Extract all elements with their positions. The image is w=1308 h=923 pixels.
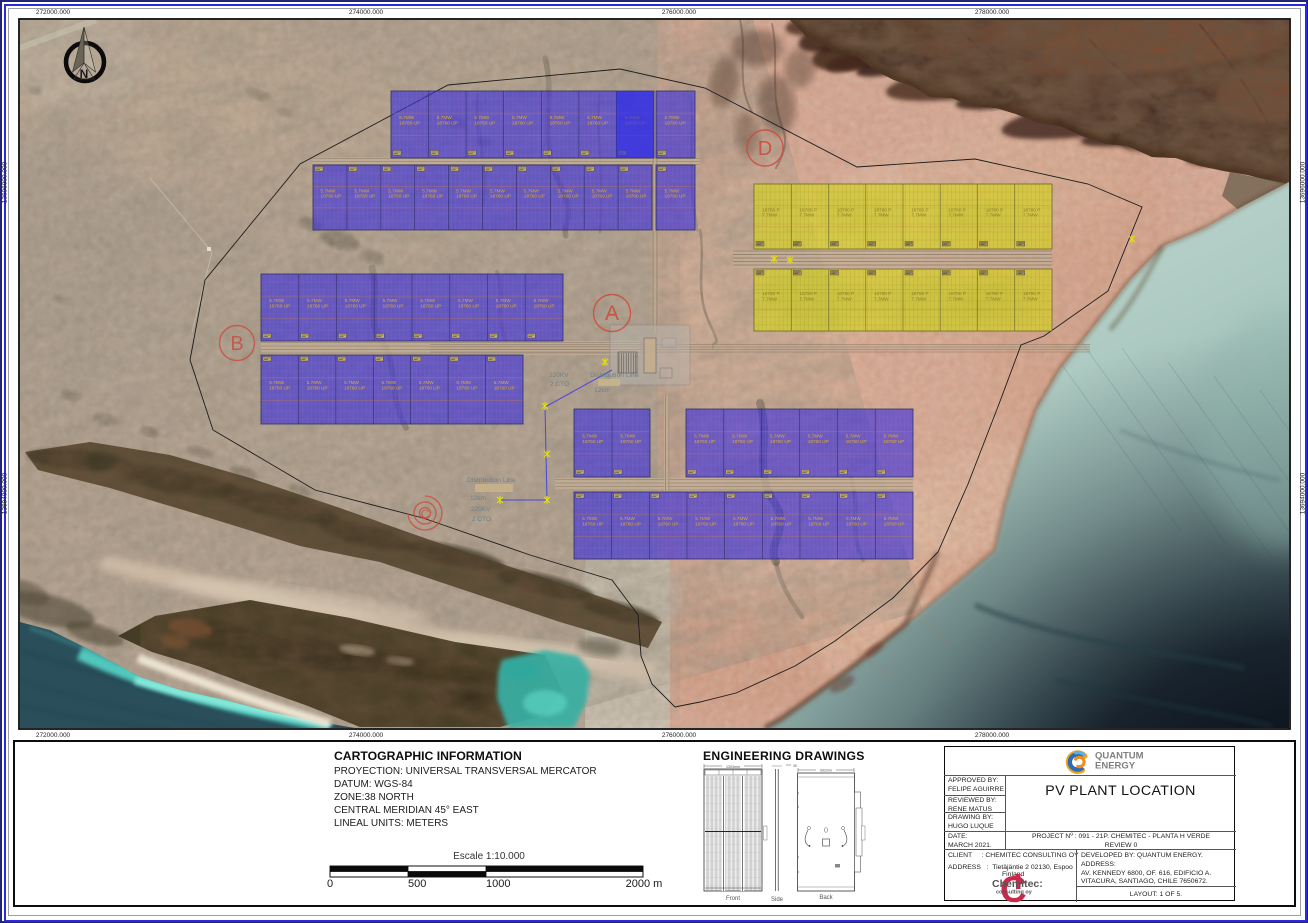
- svg-text:consulting oy: consulting oy: [996, 890, 1033, 896]
- svg-text:ENERGY: ENERGY: [1095, 761, 1136, 772]
- svg-text:Chemitec:: Chemitec:: [992, 878, 1043, 890]
